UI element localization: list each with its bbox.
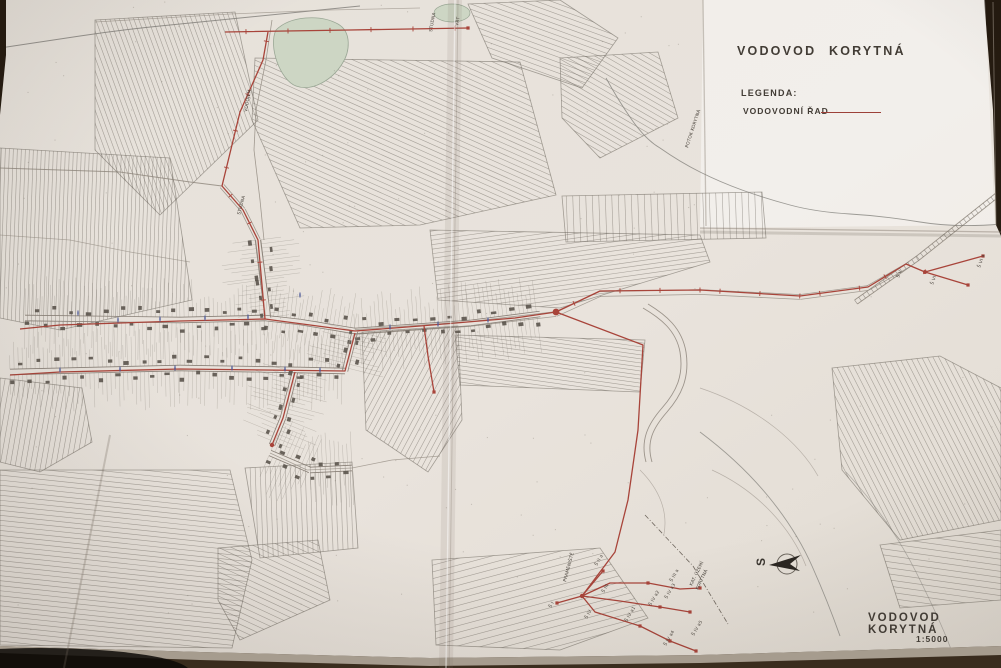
map-title: VODOVOD KORYTNÁ [737, 44, 906, 58]
legend-heading: LEGENDA: [741, 88, 798, 98]
photo-of-paper-map: VODOJEMSTUDNASTUDNAVRTPOTOK KORYTNÁPRAME… [0, 0, 1001, 668]
legend-item-label: VODOVODNÍ ŘAD [743, 106, 829, 116]
map-scale: 1:5000 [916, 634, 948, 644]
legend-water-main-line [821, 112, 881, 113]
north-letter: S [754, 558, 768, 566]
footer-map-title: VODOVOD KORYTNÁ [868, 612, 1001, 636]
map-drawing: VODOJEMSTUDNASTUDNAVRTPOTOK KORYTNÁPRAME… [0, 0, 1001, 668]
